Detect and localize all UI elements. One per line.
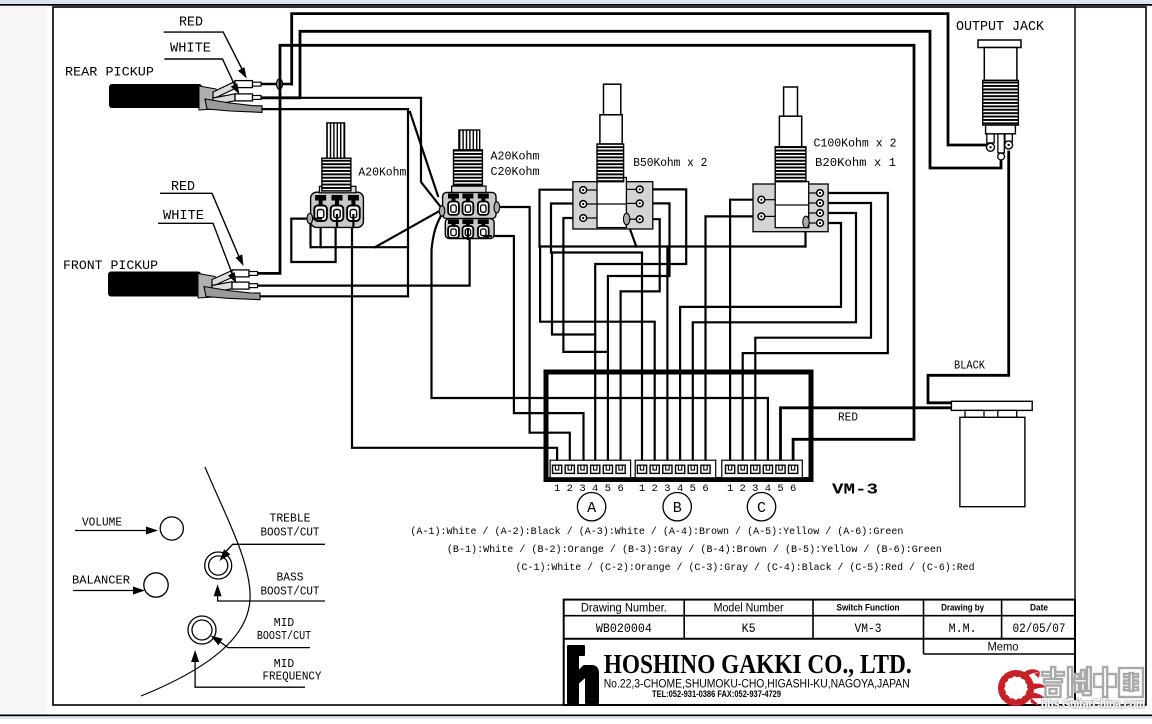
svg-text:1: 1 <box>727 483 733 495</box>
svg-text:Drawing by: Drawing by <box>941 603 985 614</box>
svg-text:6: 6 <box>702 483 708 495</box>
svg-text:1: 1 <box>554 483 560 495</box>
svg-text:bbs.GuitarChina.com: bbs.GuitarChina.com <box>1041 696 1145 711</box>
svg-text:(A-1):White / (A-2):Black / (A: (A-1):White / (A-2):Black / (A-3):White … <box>410 526 903 538</box>
svg-text:2: 2 <box>567 483 573 495</box>
svg-text:Switch Function: Switch Function <box>837 603 900 614</box>
svg-text:M.M.: M.M. <box>949 622 977 636</box>
svg-text:TEL:052-931-0386 FAX:052-937-: TEL:052-931-0386 FAX:052-937-4729 <box>652 689 781 699</box>
svg-text:RED: RED <box>838 411 858 425</box>
svg-text:Model Number: Model Number <box>714 603 784 615</box>
svg-text:(B-1):White / (B-2):Orange / (: (B-1):White / (B-2):Orange / (B-3):Gray … <box>447 544 942 556</box>
svg-text:C20Kohm: C20Kohm <box>491 165 540 179</box>
svg-text:BOOST/CUT: BOOST/CUT <box>261 527 320 540</box>
svg-text:BASS: BASS <box>277 572 304 585</box>
svg-text:FREQUENCY: FREQUENCY <box>263 671 322 684</box>
svg-text:MID: MID <box>274 658 295 671</box>
svg-text:HOSHINO GAKKI CO., LTD.: HOSHINO GAKKI CO., LTD. <box>604 649 912 679</box>
svg-text:5: 5 <box>690 483 696 495</box>
svg-text:(C-1):White / (C-2):Orange / (: (C-1):White / (C-2):Orange / (C-3):Gray … <box>516 562 975 574</box>
svg-text:2: 2 <box>740 483 746 495</box>
svg-text:WB020004: WB020004 <box>596 622 652 636</box>
svg-text:WHITE: WHITE <box>170 42 211 57</box>
svg-text:Memo: Memo <box>988 642 1019 654</box>
svg-text:BLACK: BLACK <box>954 359 986 373</box>
svg-text:A: A <box>587 500 596 517</box>
svg-text:B20Kohm x 1: B20Kohm x 1 <box>815 156 896 170</box>
svg-text:MID: MID <box>274 617 295 630</box>
svg-text:VM-3: VM-3 <box>855 622 882 636</box>
svg-text:B: B <box>673 500 682 517</box>
svg-text:Drawing Number.: Drawing Number. <box>581 603 667 615</box>
svg-text:WHITE: WHITE <box>163 209 204 224</box>
svg-text:RED: RED <box>179 16 203 31</box>
svg-text:BOOST/CUT: BOOST/CUT <box>261 586 320 599</box>
svg-text:5: 5 <box>777 483 783 495</box>
svg-text:B50Kohm x 2: B50Kohm x 2 <box>633 156 707 170</box>
svg-text:VM-3: VM-3 <box>832 482 878 499</box>
svg-text:02/05/07: 02/05/07 <box>1013 622 1066 636</box>
svg-text:K5: K5 <box>742 622 756 636</box>
svg-text:A20Kohm: A20Kohm <box>358 166 406 180</box>
svg-text:BALANCER: BALANCER <box>72 575 130 588</box>
svg-text:3: 3 <box>579 483 585 495</box>
svg-text:A20Kohm: A20Kohm <box>491 150 540 164</box>
svg-text:3: 3 <box>664 483 670 495</box>
svg-text:REAR PICKUP: REAR PICKUP <box>65 65 154 80</box>
svg-text:2: 2 <box>652 483 658 495</box>
svg-text:1: 1 <box>639 483 645 495</box>
svg-text:C: C <box>757 500 766 517</box>
svg-text:BOOST/CUT: BOOST/CUT <box>257 630 311 643</box>
svg-text:5: 5 <box>605 483 611 495</box>
svg-text:FRONT PICKUP: FRONT PICKUP <box>63 258 158 273</box>
svg-text:OUTPUT JACK: OUTPUT JACK <box>956 20 1045 35</box>
svg-text:Date: Date <box>1030 603 1048 614</box>
svg-text:C100Kohm x 2: C100Kohm x 2 <box>814 136 897 150</box>
svg-text:VOLUME: VOLUME <box>82 517 122 530</box>
svg-text:6: 6 <box>790 483 796 495</box>
svg-text:TREBLE: TREBLE <box>270 513 311 526</box>
svg-text:6: 6 <box>617 483 623 495</box>
